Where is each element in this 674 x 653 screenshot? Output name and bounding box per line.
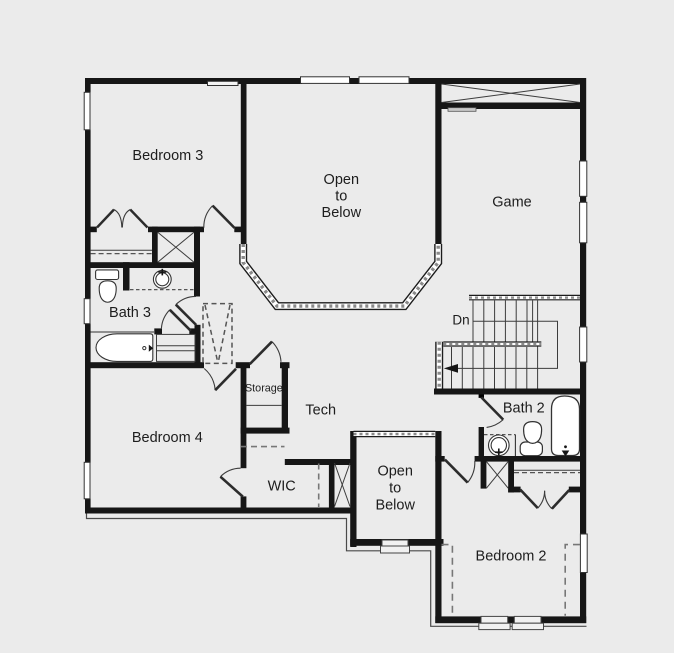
svg-text:Bedroom 2: Bedroom 2 — [476, 549, 547, 565]
svg-text:to: to — [389, 480, 401, 496]
svg-text:Storage: Storage — [245, 383, 283, 395]
svg-text:Tech: Tech — [305, 402, 336, 418]
svg-text:Open: Open — [324, 172, 359, 188]
svg-text:WIC: WIC — [268, 478, 296, 494]
svg-text:Bedroom 3: Bedroom 3 — [132, 148, 203, 164]
svg-text:Game: Game — [492, 195, 532, 211]
svg-text:Below: Below — [375, 497, 415, 513]
svg-text:Dn: Dn — [452, 313, 469, 328]
svg-text:Below: Below — [322, 205, 362, 221]
svg-text:to: to — [335, 188, 347, 204]
svg-text:Open: Open — [377, 463, 412, 479]
svg-text:Bath 2: Bath 2 — [503, 401, 545, 417]
svg-text:Bath 3: Bath 3 — [109, 305, 151, 321]
svg-text:Bedroom 4: Bedroom 4 — [132, 430, 203, 446]
